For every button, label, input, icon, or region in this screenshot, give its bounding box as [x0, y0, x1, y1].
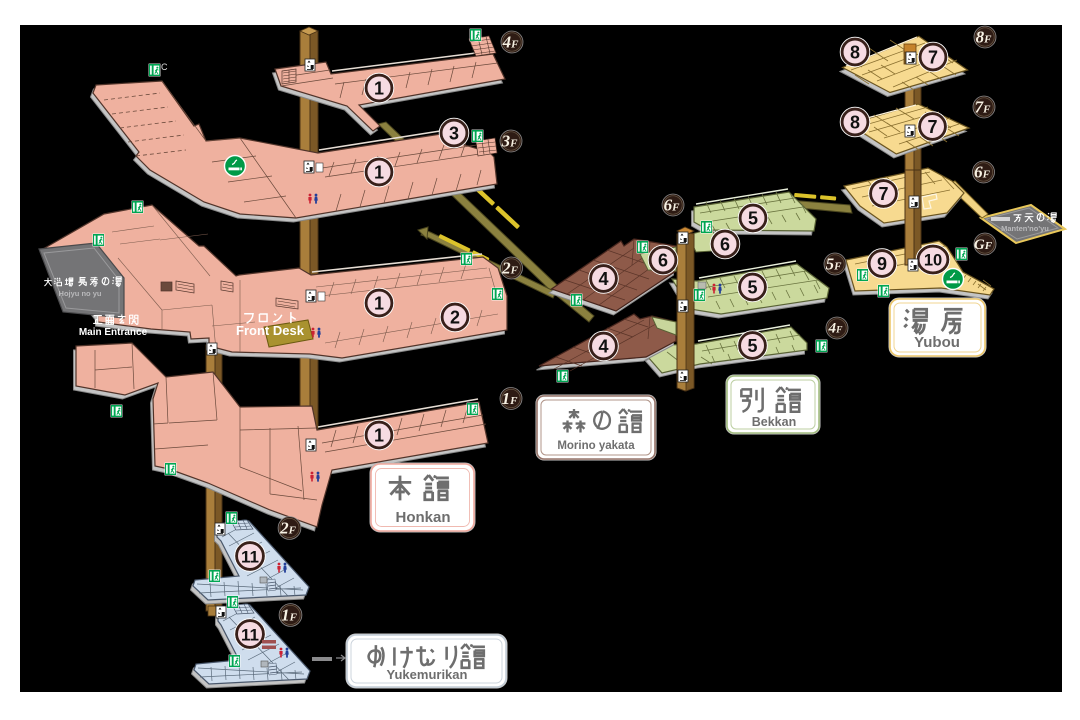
- svg-text:11: 11: [241, 626, 259, 645]
- svg-text:5: 5: [747, 278, 757, 298]
- svg-text:5: 5: [748, 209, 758, 229]
- svg-text:GF: GF: [974, 237, 993, 253]
- svg-text:1: 1: [374, 163, 384, 183]
- svg-text:6: 6: [658, 251, 668, 271]
- svg-text:1: 1: [374, 294, 384, 314]
- svg-text:6: 6: [720, 235, 730, 255]
- svg-text:8: 8: [850, 113, 860, 133]
- svg-text:Yubou: Yubou: [914, 334, 960, 351]
- svg-text:Bekkan: Bekkan: [752, 415, 796, 429]
- svg-text:Manten'no'yu: Manten'no'yu: [1001, 224, 1049, 233]
- svg-text:3: 3: [449, 124, 459, 144]
- svg-text:9: 9: [877, 254, 887, 274]
- svg-text:Front Desk: Front Desk: [236, 323, 305, 338]
- svg-text:2: 2: [450, 308, 460, 328]
- svg-text:10: 10: [924, 252, 942, 270]
- svg-text:Main Entrance: Main Entrance: [79, 327, 148, 338]
- svg-text:1: 1: [374, 426, 384, 446]
- svg-text:7: 7: [927, 117, 937, 137]
- svg-text:7: 7: [928, 48, 938, 68]
- svg-text:Morino yakata: Morino yakata: [557, 440, 635, 452]
- svg-text:C: C: [161, 62, 168, 72]
- svg-text:1: 1: [374, 79, 384, 99]
- svg-text:8: 8: [850, 43, 860, 63]
- svg-text:11: 11: [241, 548, 259, 567]
- svg-text:Yukemurikan: Yukemurikan: [387, 667, 468, 682]
- svg-text:4: 4: [598, 269, 608, 289]
- svg-text:Hojyu no yu: Hojyu no yu: [59, 289, 102, 298]
- svg-text:4: 4: [598, 337, 608, 357]
- svg-text:5: 5: [747, 336, 757, 356]
- svg-text:7: 7: [878, 184, 888, 204]
- svg-text:Honkan: Honkan: [395, 509, 450, 526]
